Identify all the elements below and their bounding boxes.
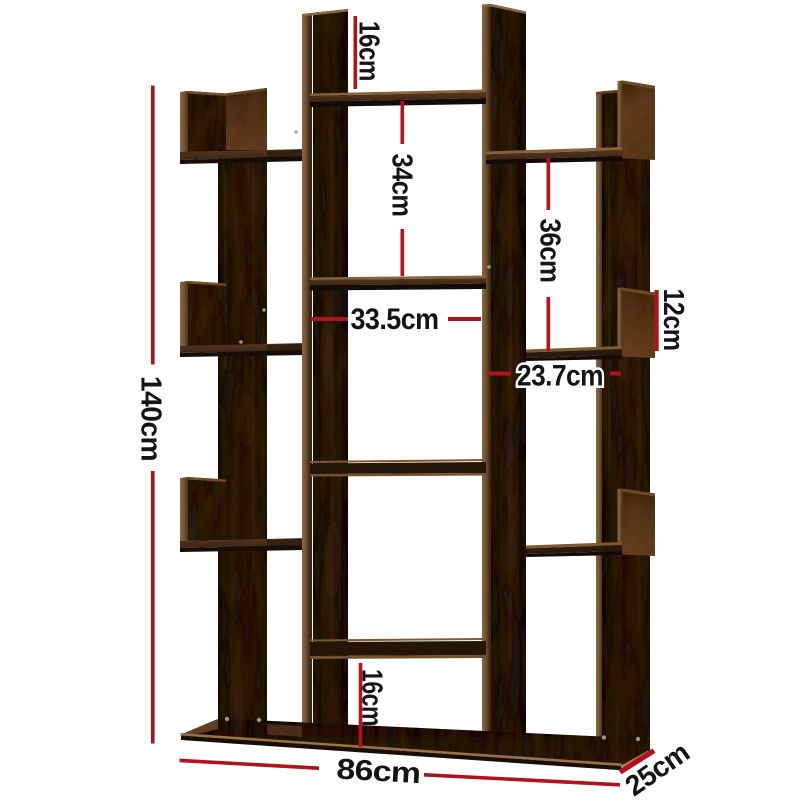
svg-text:33.5cm: 33.5cm [351, 303, 439, 336]
svg-text:12cm: 12cm [657, 289, 689, 351]
svg-text:86cm: 86cm [336, 754, 422, 791]
svg-text:36cm: 36cm [534, 219, 566, 283]
svg-text:23.7cm: 23.7cm [517, 360, 603, 393]
svg-text:16cm: 16cm [356, 669, 388, 726]
svg-text:34cm: 34cm [386, 154, 418, 217]
svg-text:140cm: 140cm [135, 376, 167, 461]
svg-text:16cm: 16cm [353, 21, 385, 81]
